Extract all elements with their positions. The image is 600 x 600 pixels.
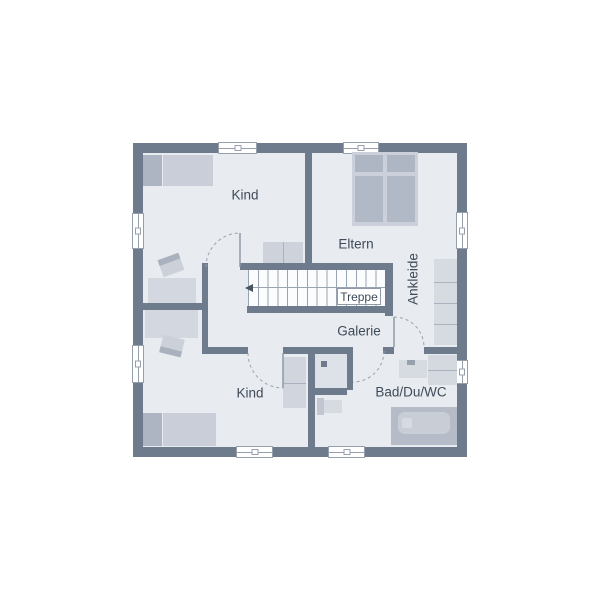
door-swing-icon: [206, 233, 240, 267]
room-label-ankleide: Ankleide: [406, 253, 421, 305]
floor-plan: Treppe: [133, 143, 467, 457]
room-label-galerie: Galerie: [337, 324, 381, 339]
room-label-kind-bottom: Kind: [236, 386, 263, 401]
stairs-label: Treppe: [340, 290, 378, 304]
door-swing-icon: [353, 351, 384, 382]
door-swing-icon: [394, 317, 424, 347]
door-swing-icon: [248, 353, 283, 388]
room-label-bad: Bad/Du/WC: [375, 385, 446, 400]
room-label-eltern: Eltern: [338, 237, 373, 252]
floor-plan-canvas: Treppe: [0, 0, 600, 600]
stair-direction-arrow-icon: [245, 284, 253, 292]
room-label-kind-top: Kind: [231, 188, 258, 203]
stairs-label-box: Treppe: [337, 288, 381, 305]
